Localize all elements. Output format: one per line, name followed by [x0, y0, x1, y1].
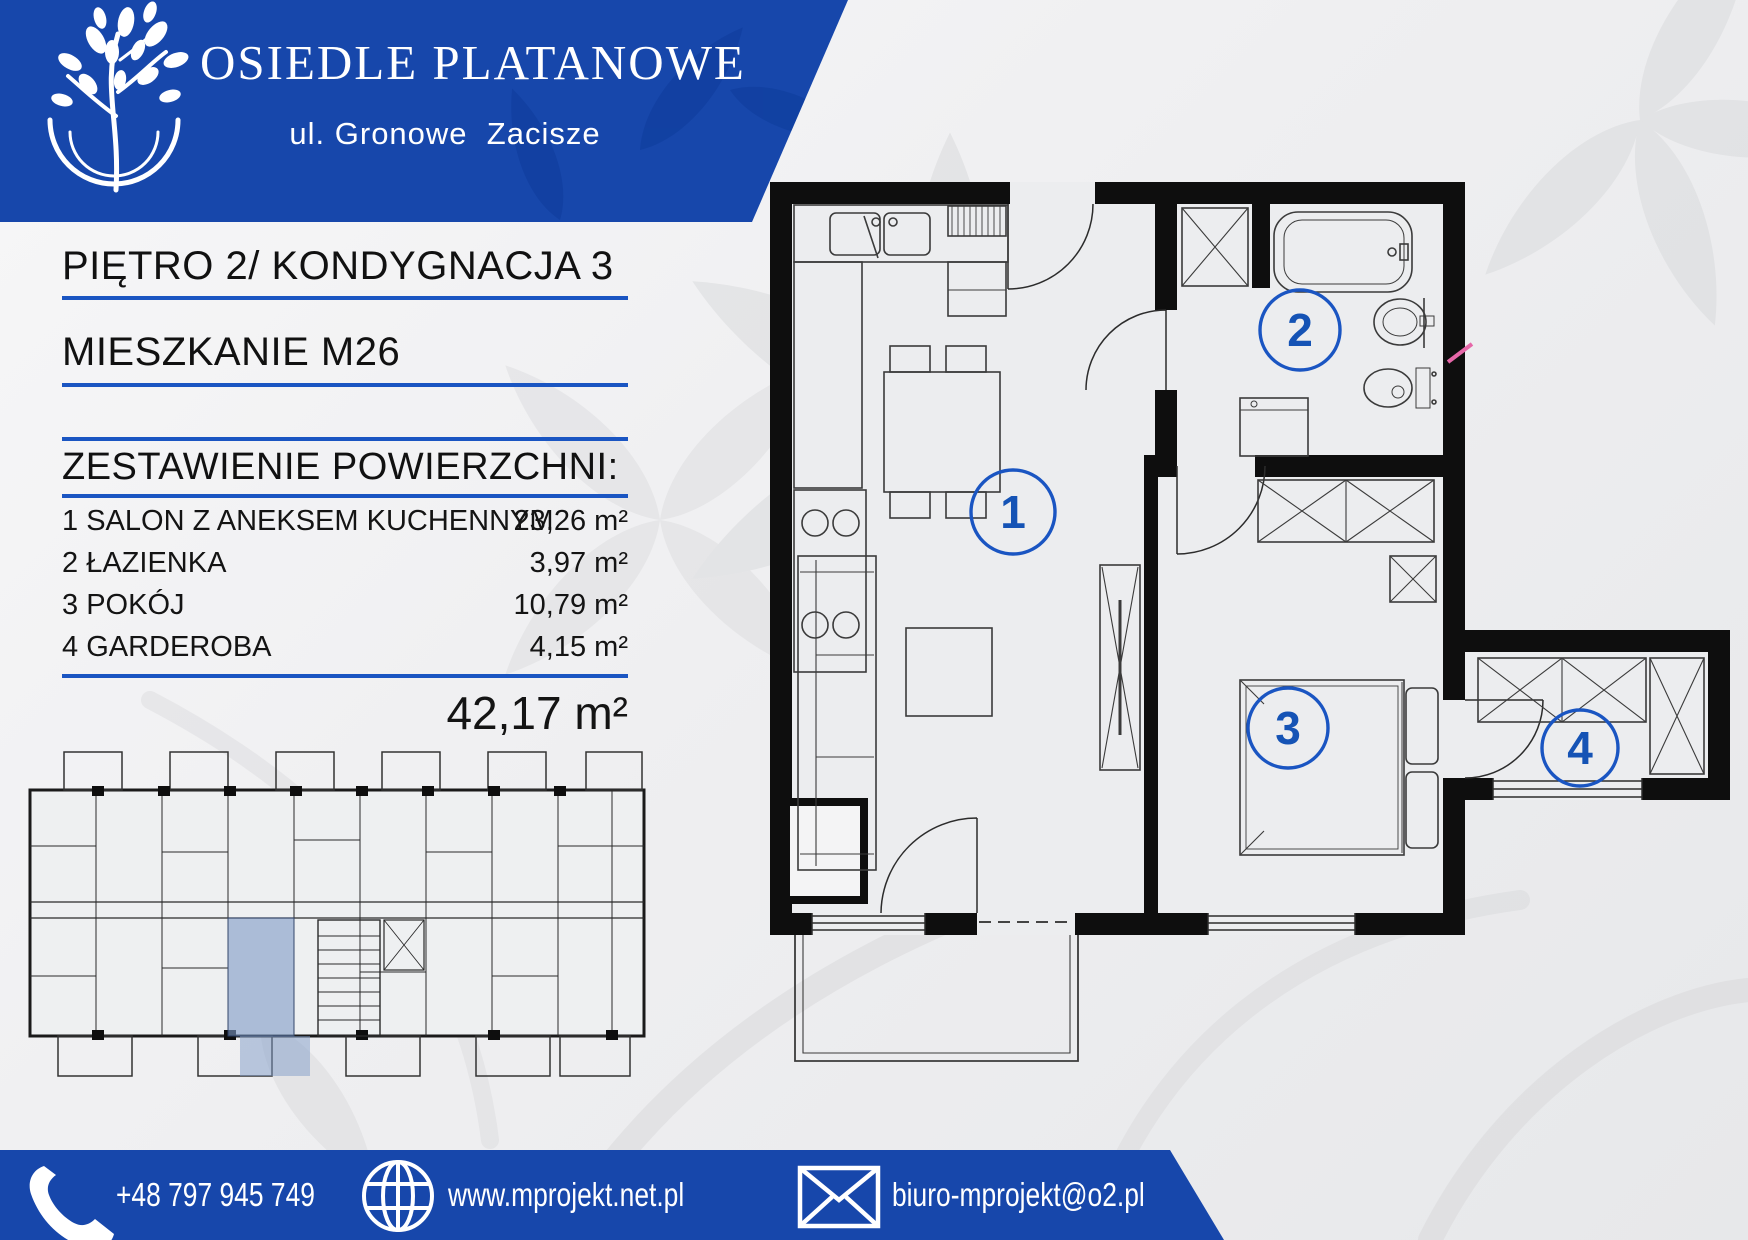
room-4-label: 4 — [1567, 722, 1593, 774]
room-1-label: 1 — [1000, 486, 1026, 538]
room-2-label: 2 — [1287, 304, 1313, 356]
balconies-top — [64, 752, 642, 790]
phone-number: +48 797 945 749 — [116, 1176, 315, 1214]
highlighted-unit-balcony — [240, 1036, 310, 1076]
room-3-label: 3 — [1275, 702, 1301, 754]
website-url: www.mprojekt.net.pl — [448, 1176, 684, 1214]
globe-icon — [364, 1162, 432, 1230]
envelope-icon — [800, 1168, 878, 1226]
balcony — [795, 935, 1078, 1061]
plans-layer: 1 2 3 4 — [0, 0, 1748, 1240]
phone-icon — [30, 1166, 114, 1240]
building-overview-plan — [30, 752, 644, 1076]
balconies-bottom — [58, 1036, 630, 1076]
email-address: biuro-mprojekt@o2.pl — [892, 1176, 1145, 1214]
apartment-floor — [770, 182, 1730, 935]
apartment-floorplan: 1 2 3 4 — [770, 182, 1730, 1061]
flyer-page: OSIEDLE PLATANOWE ul. Gronowe Zacisze PI… — [0, 0, 1748, 1240]
highlighted-unit — [228, 918, 294, 1036]
